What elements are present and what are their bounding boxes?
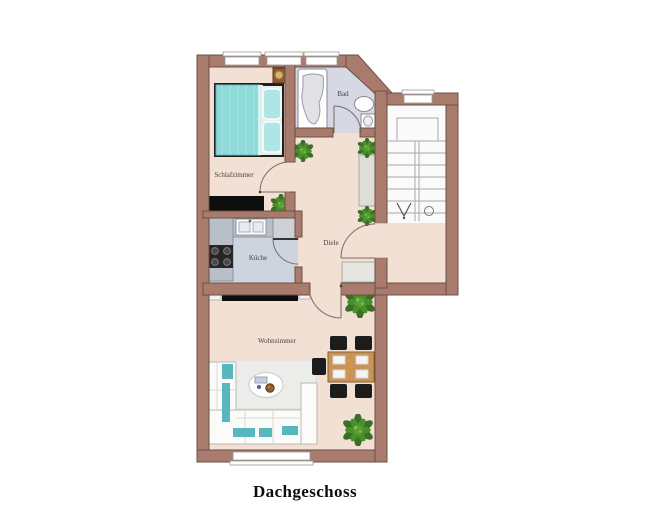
stair-arrow-dot: [403, 217, 405, 219]
window-sill: [223, 52, 261, 56]
nightstand: [273, 68, 285, 83]
wall-left: [197, 55, 209, 462]
bedroom-wardrobe: [208, 196, 264, 211]
magazine: [255, 377, 267, 383]
wall-stair-right: [446, 93, 458, 295]
door-hinge-dot: [340, 285, 343, 288]
bathtub: [298, 69, 327, 131]
floor-title: Dachgeschoss: [155, 482, 455, 502]
sofa-cushion: [233, 428, 255, 437]
dining-chair: [355, 384, 372, 398]
floor-plan: Schlafzimmer Bad Küche Diele Wohnzimmer …: [0, 0, 650, 520]
wall-hallway-stair: [375, 91, 387, 223]
wall-kitchen-right-bottom: [295, 267, 302, 283]
placemat: [356, 356, 368, 364]
dining-chair: [355, 336, 372, 350]
hallway-label: Diele: [323, 239, 338, 247]
wall-bedroom-bottom: [203, 211, 295, 218]
dining-chair: [330, 384, 347, 398]
bedside-lamp: [275, 71, 283, 79]
floor-plan-drawing: Schlafzimmer Bad Küche Diele Wohnzimmer: [0, 0, 650, 520]
window-sill: [304, 52, 339, 56]
placemat: [333, 370, 345, 378]
stairwell-floor: [387, 105, 446, 223]
wall-kitchen-right-top: [295, 211, 302, 237]
hallway-sideboard: [342, 262, 376, 282]
stairwell-window: [404, 95, 432, 103]
dining-chair: [330, 336, 347, 350]
refrigerator: [273, 218, 298, 239]
stair-landing-floor: [387, 223, 446, 283]
living-room-label: Wohnzimmer: [258, 337, 297, 345]
wall-bedroom-right: [285, 61, 295, 162]
wall-bathroom-bottom-left: [295, 128, 333, 137]
double-bed: [214, 83, 284, 157]
bedroom-window: [225, 57, 259, 65]
stove: [209, 245, 233, 268]
fruit-bowl: [266, 384, 274, 392]
window-sill: [265, 52, 303, 56]
wall-bathroom-bottom-right: [360, 128, 375, 137]
sofa-cushion: [282, 426, 298, 435]
wall-right-lower: [375, 283, 387, 462]
wall-hallway-bottom-stub: [341, 283, 375, 295]
hallway-cabinet: [359, 155, 375, 206]
kitchen-sink: [236, 219, 266, 235]
entry-door-opening: [375, 223, 387, 258]
living-room-window: [233, 452, 310, 460]
bedroom-window: [267, 57, 301, 65]
table-decor: [257, 385, 261, 389]
toilet: [361, 114, 375, 128]
sofa-cushion: [259, 428, 272, 437]
placemat: [356, 370, 368, 378]
bathroom-label: Bad: [337, 90, 349, 98]
dining-chair: [312, 358, 326, 375]
door-hinge-dot: [259, 191, 262, 194]
bathroom-sink: [355, 97, 374, 112]
wall-entry-stub: [375, 258, 387, 288]
placemat: [333, 356, 345, 364]
sofa-pillow: [222, 364, 233, 379]
sofa-cushion: [222, 383, 230, 422]
window-sill: [402, 90, 434, 94]
bathroom-window: [306, 57, 337, 65]
coffee-table: [249, 373, 283, 398]
kitchen-label: Küche: [249, 254, 267, 262]
bedroom-label: Schlafzimmer: [214, 171, 254, 179]
wall-kitchen-bottom: [203, 283, 310, 295]
window-sill: [230, 461, 313, 465]
